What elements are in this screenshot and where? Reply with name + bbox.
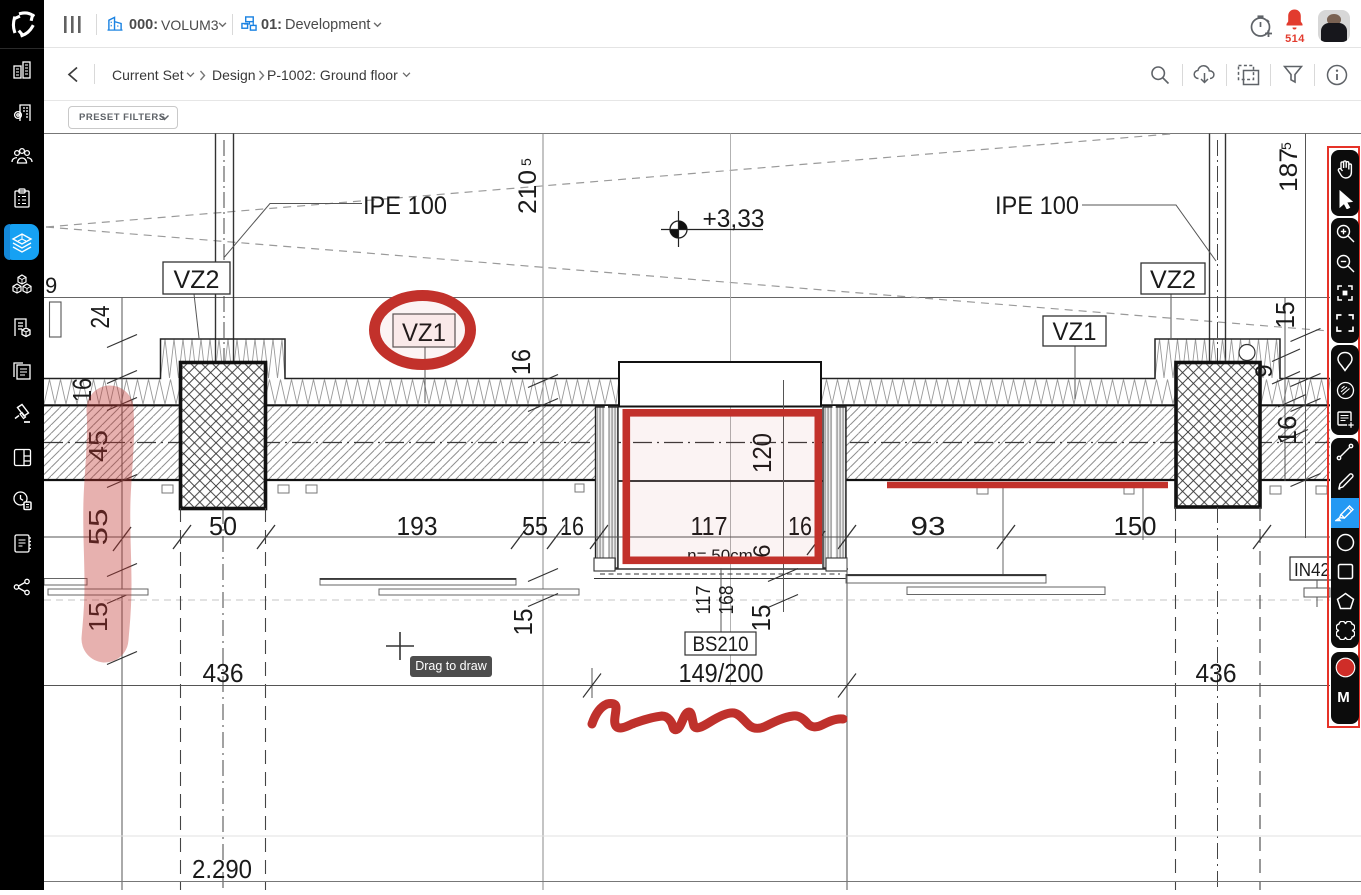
svg-text:VZ2: VZ2 [1150,266,1196,294]
svg-text:55: 55 [522,511,548,541]
svg-text:15: 15 [746,605,776,632]
svg-text:BS210: BS210 [693,633,749,656]
svg-text:210: 210 [514,170,542,214]
svg-text:168: 168 [716,586,738,615]
svg-text:+3,33: +3,33 [703,205,765,233]
svg-text:2.290: 2.290 [192,854,252,884]
svg-text:436: 436 [1196,658,1237,688]
svg-text:436: 436 [203,658,244,688]
svg-text:IPE 100: IPE 100 [995,192,1079,220]
svg-text:149/200: 149/200 [679,658,764,688]
svg-text:9: 9 [1251,364,1278,377]
svg-text:VZ2: VZ2 [174,266,220,294]
svg-text:16: 16 [560,511,584,541]
svg-text:15: 15 [508,609,538,636]
svg-text:9: 9 [45,273,57,298]
svg-text:150: 150 [1114,511,1157,541]
svg-text:24: 24 [85,306,115,329]
svg-text:5: 5 [518,158,534,166]
svg-text:193: 193 [397,511,438,541]
svg-text:16: 16 [1272,416,1302,445]
svg-text:16: 16 [506,349,536,375]
svg-text:93: 93 [911,511,946,541]
svg-text:15: 15 [1270,302,1300,329]
svg-text:5: 5 [1278,142,1294,150]
svg-text:VZ1: VZ1 [1053,318,1097,346]
svg-text:187: 187 [1275,148,1303,192]
svg-text:117: 117 [693,586,715,615]
svg-text:IN42: IN42 [1294,560,1330,580]
svg-text:IPE 100: IPE 100 [363,192,447,220]
